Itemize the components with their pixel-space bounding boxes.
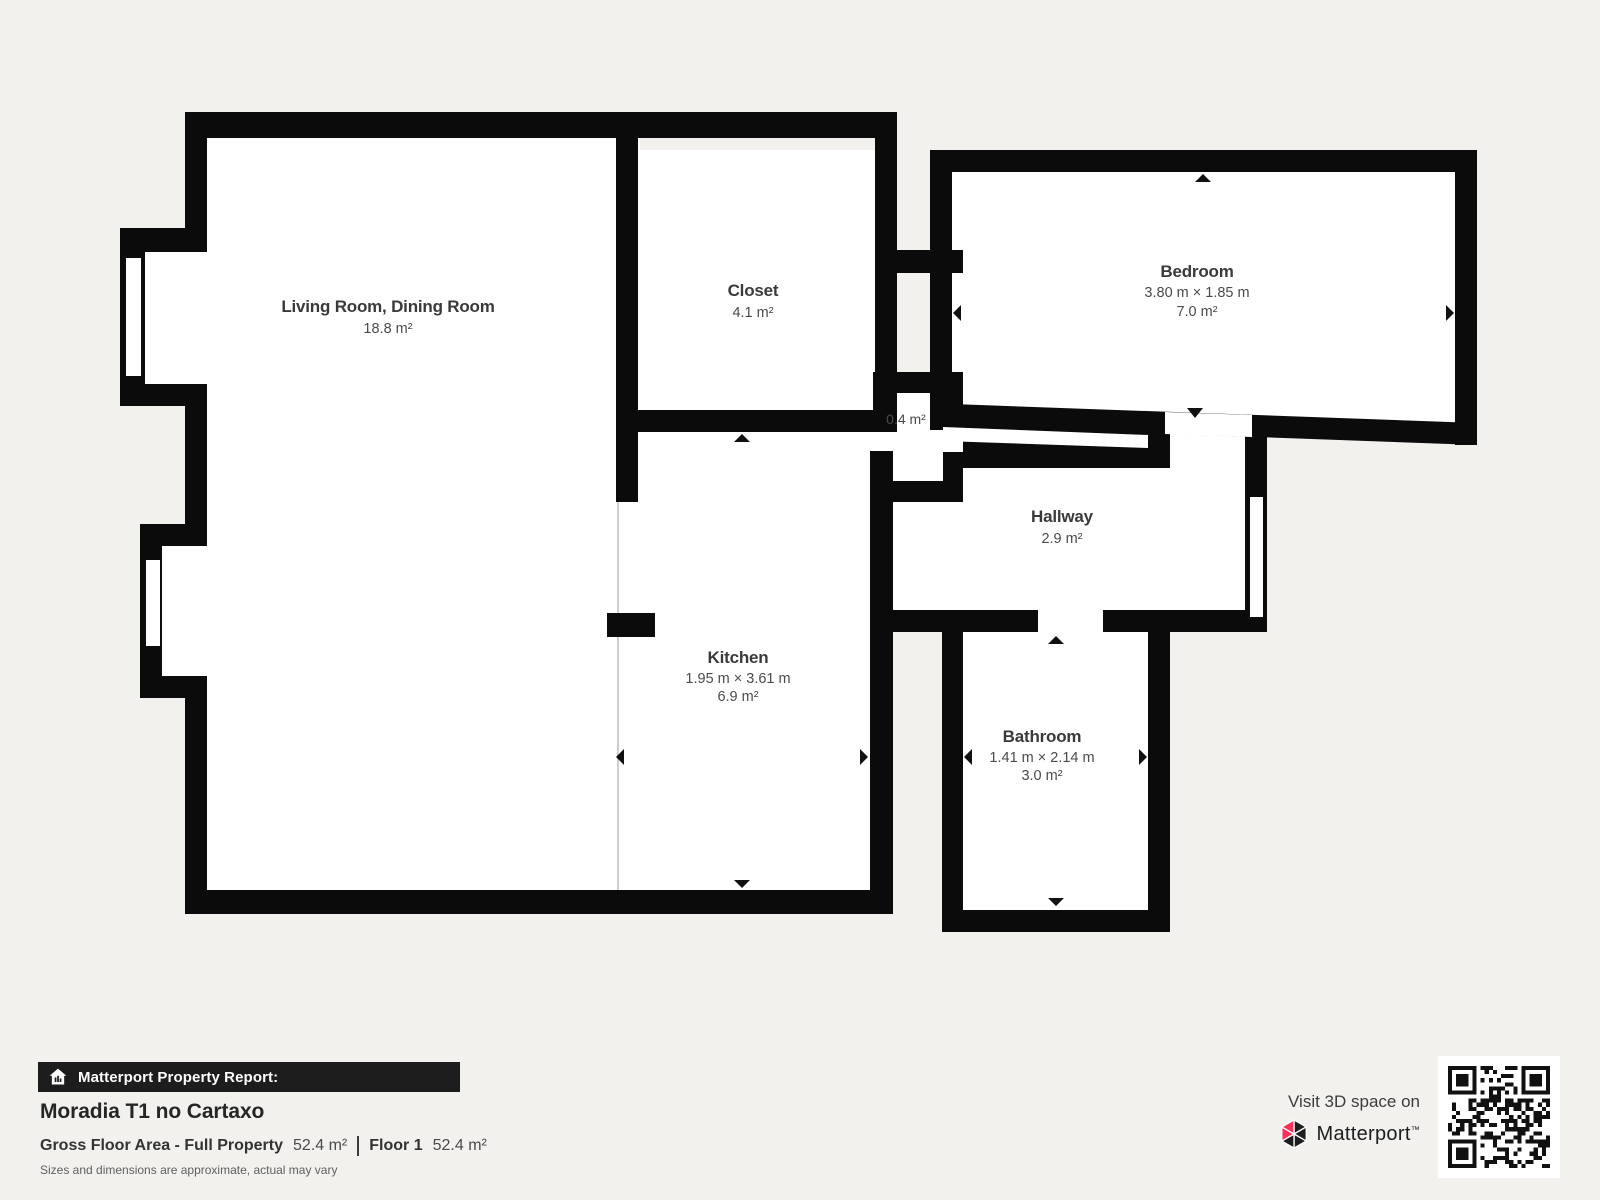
gross-floor-area-label: Gross Floor Area - Full Property [40,1137,283,1155]
property-report-page: Living Room, Dining Room 18.8 m² Closet … [0,0,1600,1200]
matterport-wordmark: Matterport™ [1317,1123,1420,1146]
badge-label: Matterport Property Report: [78,1069,278,1086]
label-bedroom-name: Bedroom [1160,262,1233,281]
report-badge-bar: Matterport Property Report: [38,1062,460,1092]
window-living-1 [126,258,141,376]
gross-floor-area-value: 52.4 m² [293,1137,347,1155]
label-hallway-area: 2.9 m² [1041,531,1082,547]
visit-3d-text: Visit 3D space on [1200,1092,1420,1112]
label-living-area: 18.8 m² [363,321,412,337]
label-bathroom-area: 3.0 m² [1021,768,1062,784]
report-disclaimer: Sizes and dimensions are approximate, ac… [40,1163,337,1177]
floor-label: Floor 1 [369,1137,422,1155]
label-bathroom-dims: 1.41 m × 2.14 m [989,750,1094,766]
label-bedroom-dims: 3.80 m × 1.85 m [1144,285,1249,301]
qr-code-pattern [1448,1066,1550,1168]
room-living [195,130,640,895]
report-title: Moradia T1 no Cartaxo [40,1100,264,1124]
window-living-2 [146,560,160,646]
door-bathroom [1038,610,1103,632]
trademark-symbol: ™ [1411,1124,1420,1134]
door-kitchen-niche [872,432,893,451]
stats-divider [357,1136,359,1156]
door-bedroom [1165,412,1252,437]
label-closet-name: Closet [728,281,779,300]
qr-code [1438,1056,1560,1178]
label-kitchen-area: 6.9 m² [717,689,758,705]
floor-value: 52.4 m² [433,1137,487,1155]
matterport-logo-icon [1278,1118,1310,1150]
label-closet-area: 4.1 m² [732,305,773,321]
open-boundary-line [617,502,619,890]
label-bathroom-name: Bathroom [1003,727,1082,746]
window-bay-1 [145,252,207,384]
label-living-name: Living Room, Dining Room [281,297,494,316]
report-stats: Gross Floor Area - Full Property 52.4 m²… [40,1136,487,1156]
matterport-promo: Visit 3D space on Matterport™ [1200,1092,1420,1150]
label-kitchen-name: Kitchen [708,648,769,667]
floorplan: Living Room, Dining Room 18.8 m² Closet … [0,0,1600,1040]
window-hallway [1250,497,1263,617]
label-bedroom-area: 7.0 m² [1176,304,1217,320]
label-kitchen-dims: 1.95 m × 3.61 m [685,671,790,687]
qr-modules [1448,1066,1550,1168]
house-chart-icon [48,1067,68,1087]
label-niche-area: 0.4 m² [886,411,926,427]
label-hallway-name: Hallway [1031,507,1094,526]
window-bay-2 [162,546,207,676]
matterport-brand-row: Matterport™ [1200,1118,1420,1150]
